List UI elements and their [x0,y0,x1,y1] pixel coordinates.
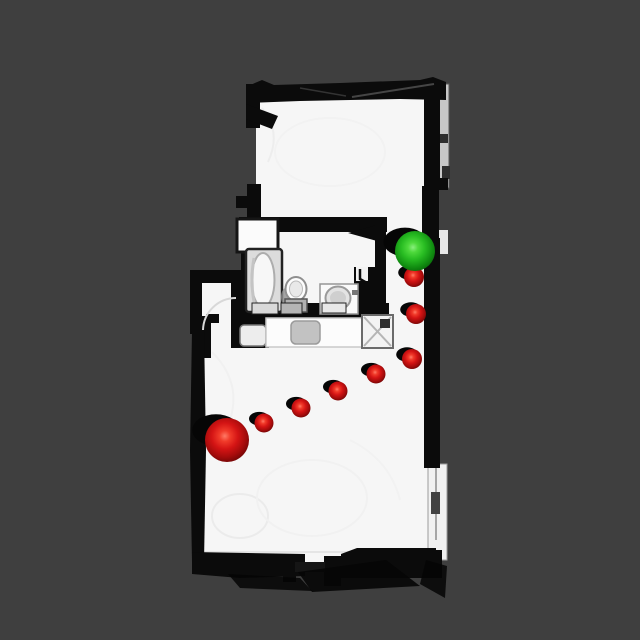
upper-room-floor [256,96,434,220]
waypoint-sphere [402,349,422,369]
waypoint-sphere [329,382,348,401]
opening-mark [431,492,440,514]
toilet-bowl-inner [290,281,303,297]
ledge-mark [442,166,450,179]
start-sphere [205,418,249,462]
wall-mid-left-foot [236,196,249,208]
cabinet-top [322,303,346,313]
sink-tap [352,290,358,295]
waypoint-sphere [406,304,426,324]
waypoint-sphere [367,365,386,384]
side-table-mark [380,319,390,328]
waypoint-sphere [255,414,274,433]
waypoint-sphere [292,399,311,418]
counter-item [291,321,320,344]
cabinet-top [281,303,302,314]
floorplan-svg [0,0,640,640]
washing-machine [240,325,266,346]
wall-right-lower [424,238,440,468]
wall-right-upper [424,84,440,190]
wall-left-main [190,330,206,562]
closet [237,219,278,252]
cabinet-top [252,303,278,314]
goal-sphere [395,231,435,271]
scan-viewer-canvas[interactable] [0,0,640,640]
wall-mid-left [247,184,261,222]
